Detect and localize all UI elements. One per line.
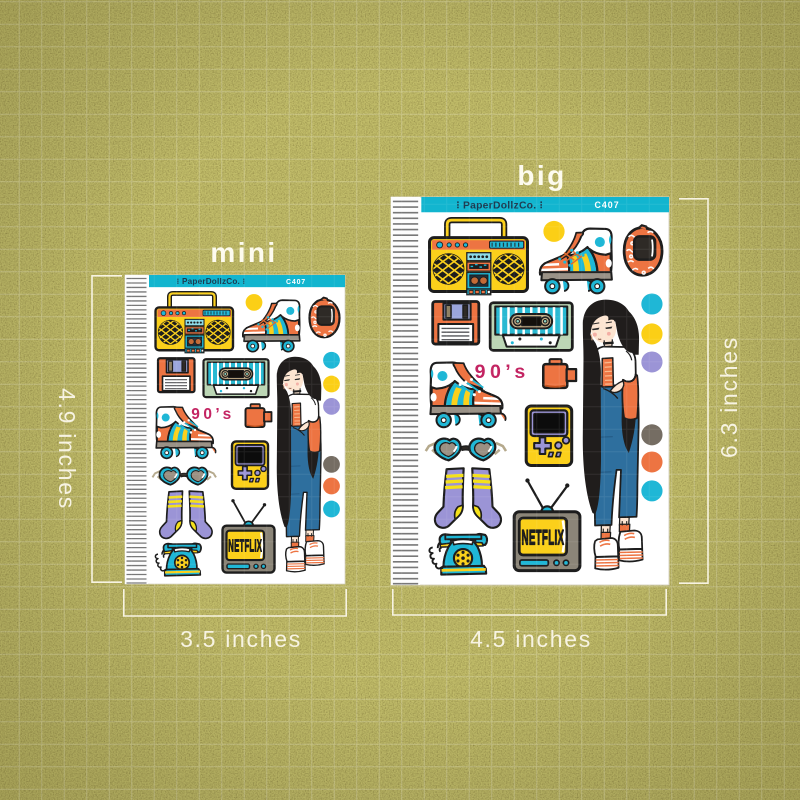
svg-text:4.5 inches: 4.5 inches	[470, 626, 592, 652]
svg-text:big: big	[517, 160, 566, 191]
svg-text:3.5 inches: 3.5 inches	[180, 626, 302, 652]
svg-text:mini: mini	[210, 237, 277, 268]
svg-text:6.3 inches: 6.3 inches	[716, 336, 742, 458]
svg-text:4.9 inches: 4.9 inches	[54, 388, 80, 510]
